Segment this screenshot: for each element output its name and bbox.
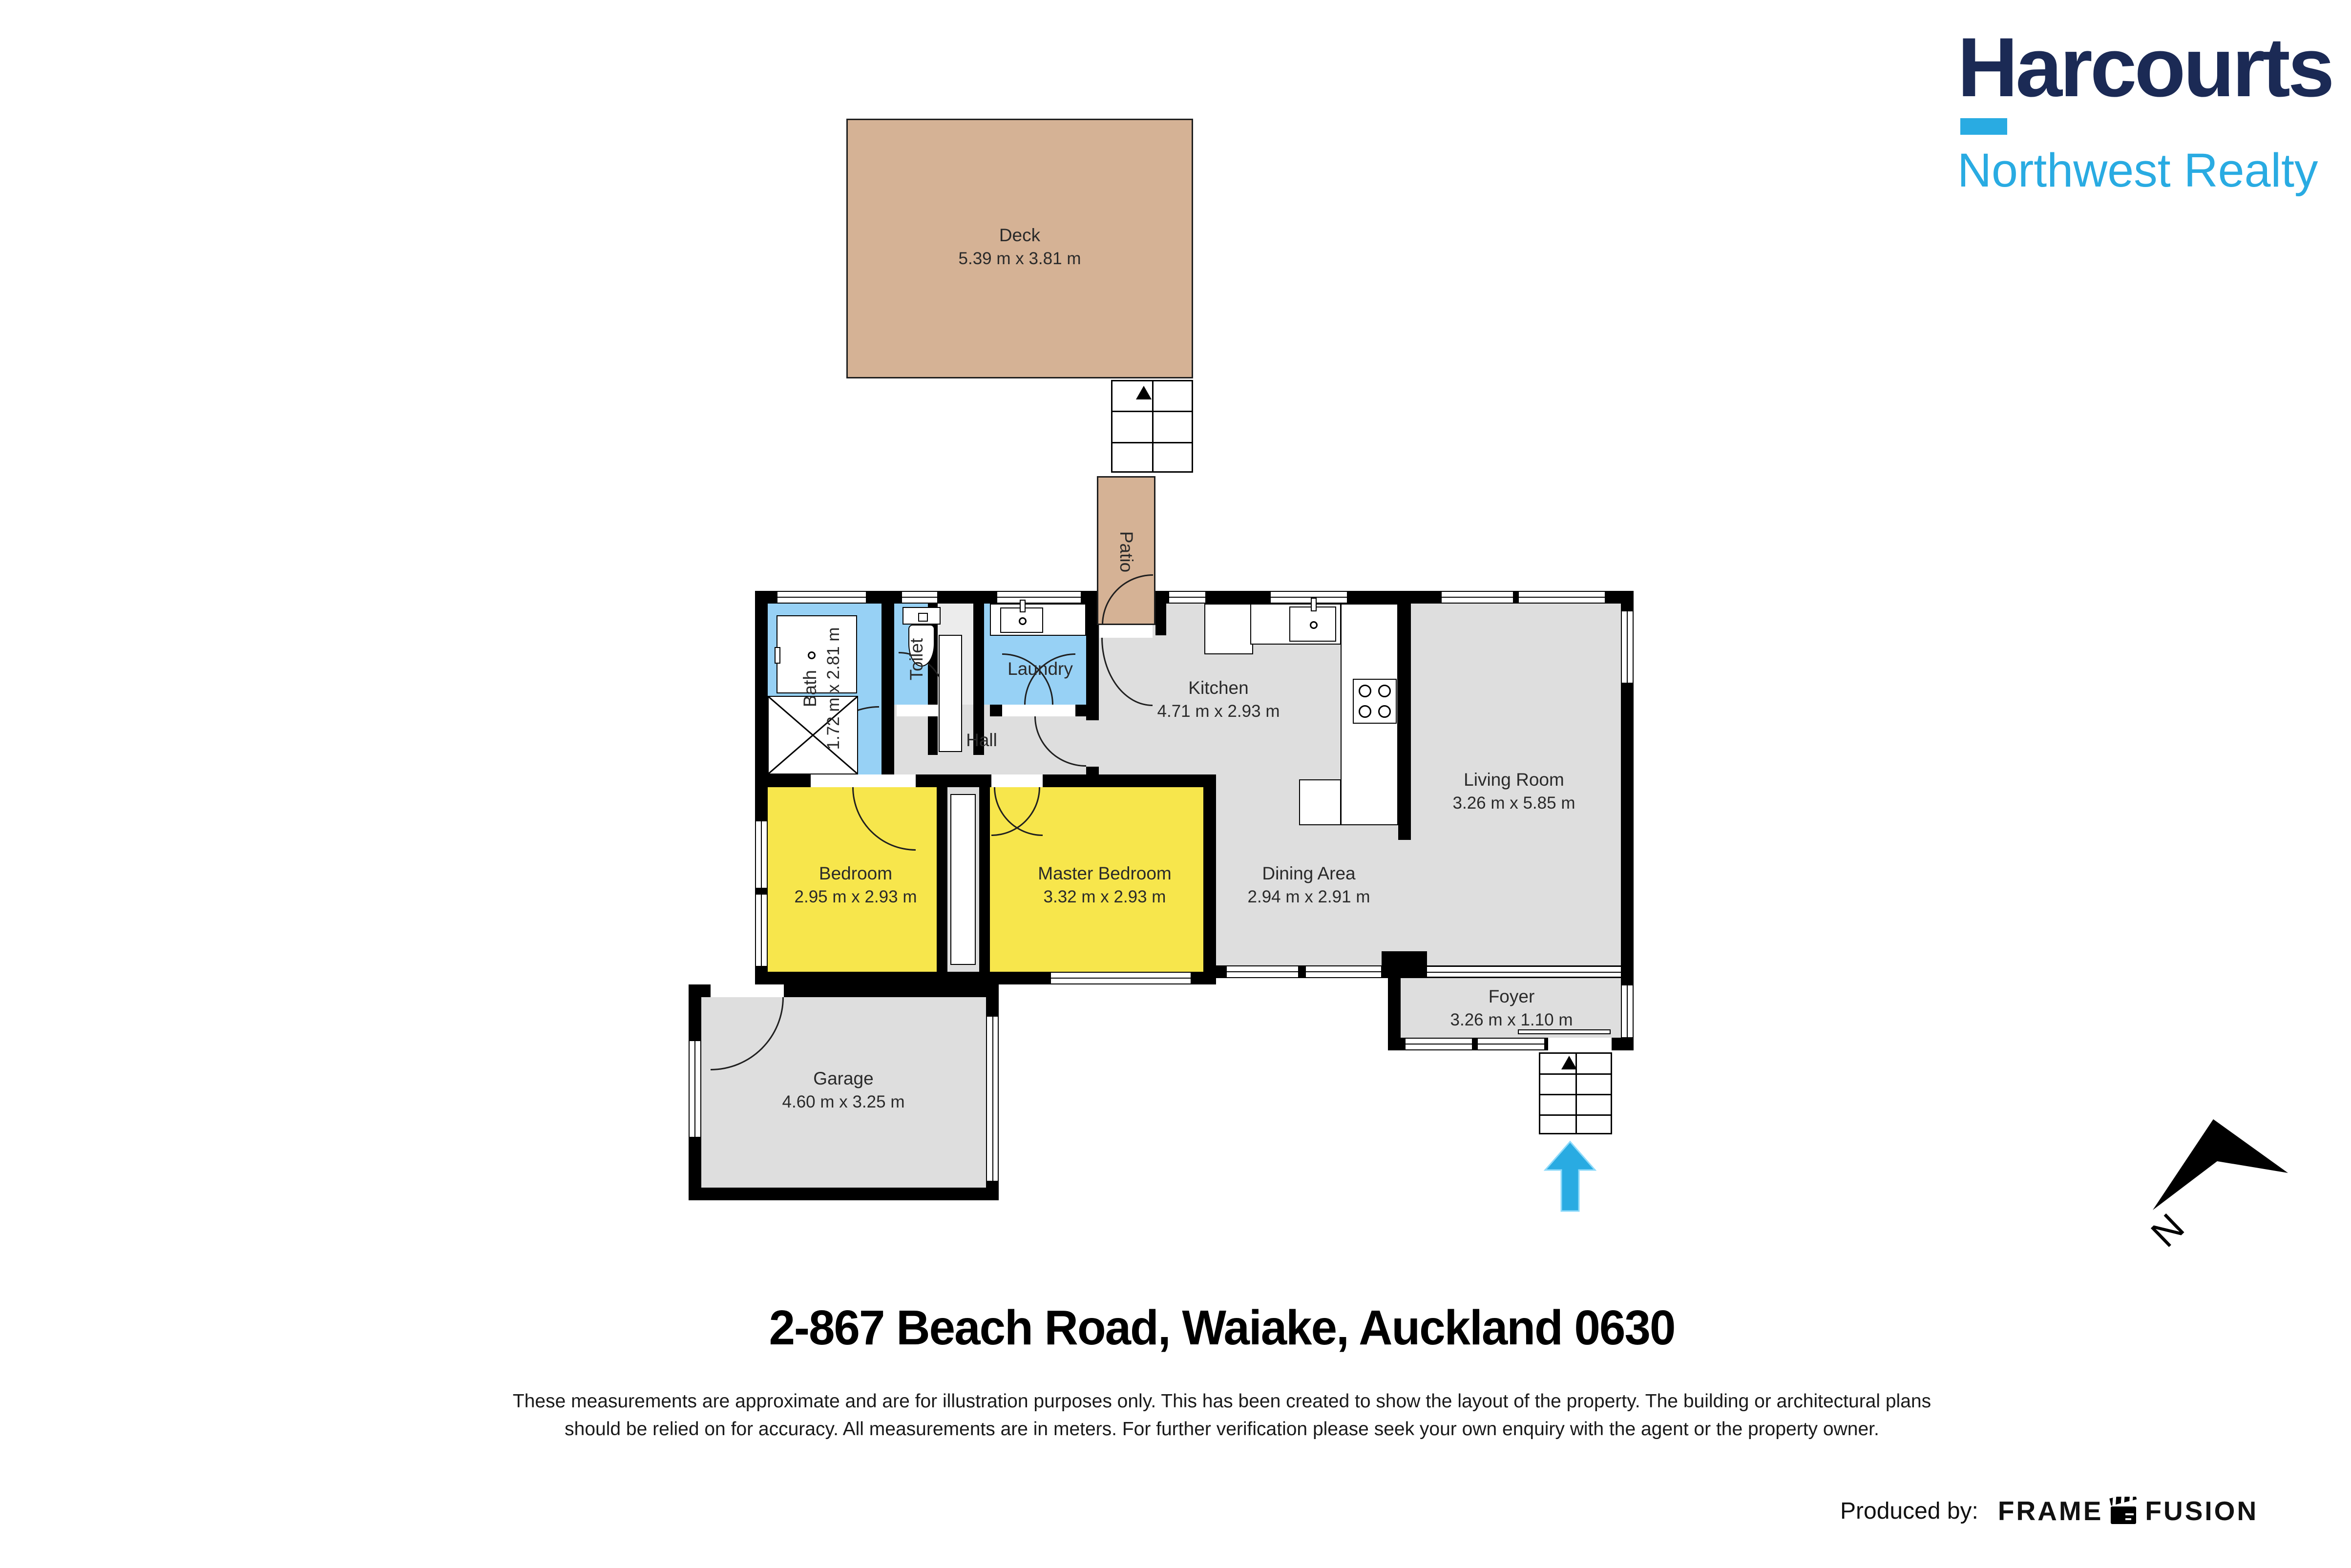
address-title: 2-867 Beach Road, Waiake, Auckland 0630 (769, 1300, 1675, 1356)
stairs-up-arrow-icon (1136, 386, 1152, 399)
laundry-sink (1000, 607, 1043, 633)
wall-segment (1155, 604, 1166, 635)
door-opening (711, 984, 784, 997)
cupboard (939, 635, 962, 752)
window (1305, 965, 1382, 978)
burner-icon (1359, 685, 1371, 697)
toilet-cistern (903, 607, 941, 625)
room-label-dining: Dining Area 2.94 m x 2.91 m (1248, 861, 1370, 908)
room-label-bath: Bath 1.72 m x 2.81 m (798, 627, 845, 750)
drain-icon (1310, 621, 1318, 629)
produced-by-label: Produced by: (1840, 1498, 1978, 1525)
room-label-kitchen: Kitchen 4.71 m x 2.93 m (1157, 676, 1280, 723)
window (755, 894, 768, 967)
door-opening (1100, 625, 1153, 638)
window (689, 1040, 701, 1138)
window (1168, 591, 1206, 604)
wall-segment (937, 787, 947, 972)
wall-segment (1398, 604, 1411, 840)
window (1621, 984, 1634, 1038)
window (1518, 591, 1606, 604)
wall-segment (979, 787, 990, 972)
burner-icon (1378, 685, 1391, 697)
room-label-foyer: Foyer 3.26 m x 1.10 m (1450, 984, 1573, 1031)
drain-icon (1019, 617, 1027, 625)
wall-segment (882, 604, 894, 774)
wall-segment (1086, 604, 1097, 635)
producer-name-fusion: FUSION (2145, 1495, 2258, 1526)
closet-doors (950, 794, 976, 965)
north-letter: N (2144, 1205, 2192, 1255)
brand-name: Harcourts (1957, 25, 2332, 109)
window (1441, 591, 1514, 604)
brand-underline-bar (1960, 118, 2007, 135)
stove (1353, 679, 1397, 724)
disclaimer-text: These measurements are approximate and a… (487, 1388, 1957, 1443)
window (1226, 965, 1299, 978)
stairs-up-arrow-icon (1561, 1056, 1577, 1069)
room-label-toilet: Toilet (904, 638, 929, 680)
sliding-door (1427, 965, 1621, 978)
fridge (1204, 604, 1253, 654)
kitchen-sink (1289, 606, 1336, 642)
door-opening (811, 774, 879, 787)
window (1405, 1038, 1473, 1050)
window (1477, 1038, 1545, 1050)
clapperboard-icon (2109, 1497, 2139, 1525)
room-label-master: Master Bedroom 3.32 m x 2.93 m (1038, 861, 1172, 908)
north-arrow-icon (2153, 1119, 2288, 1210)
room-label-bedroom: Bedroom 2.95 m x 2.93 m (795, 861, 917, 908)
window (901, 591, 938, 604)
north-compass: N (2144, 1113, 2295, 1265)
producer-name-frame: FRAME (1998, 1495, 2103, 1526)
window (1270, 591, 1348, 604)
tap-icon (1311, 598, 1317, 611)
wall-segment (689, 1188, 999, 1200)
door-opening (991, 774, 1043, 787)
window (1621, 610, 1634, 684)
tap-icon (1020, 600, 1026, 612)
window (755, 820, 768, 889)
burner-icon (1378, 705, 1391, 718)
wall-segment (1203, 774, 1216, 972)
harcourts-logo: Harcourts Northwest Realty (1957, 25, 2332, 194)
window (777, 591, 867, 604)
door-opening (897, 705, 939, 716)
room-label-deck: Deck 5.39 m x 3.81 m (959, 223, 1081, 270)
window (996, 591, 1082, 604)
room-label-garage: Garage 4.60 m x 3.25 m (782, 1066, 905, 1113)
room-label-laundry: Laundry (1008, 657, 1073, 681)
kitchen-counter (1299, 779, 1341, 825)
room-label-living: Living Room 3.26 m x 5.85 m (1453, 768, 1575, 815)
garage-door (986, 1016, 999, 1182)
burner-icon (1359, 705, 1371, 718)
brand-subtitle: Northwest Realty (1957, 146, 2332, 194)
front-door-opening (1548, 1038, 1612, 1050)
floorplan-page: Harcourts Northwest Realty (0, 0, 2351, 1568)
door-opening (1002, 705, 1075, 716)
producer-credit: Produced by: FRAME FUSION (1840, 1495, 2258, 1526)
room-label-hall: Hall (966, 728, 997, 753)
entrance-arrow-icon (1543, 1139, 1597, 1213)
tap-icon (775, 647, 780, 664)
window (1050, 972, 1192, 984)
deck-stairs (1111, 380, 1193, 473)
room-label-patio: Patio (1114, 531, 1138, 572)
